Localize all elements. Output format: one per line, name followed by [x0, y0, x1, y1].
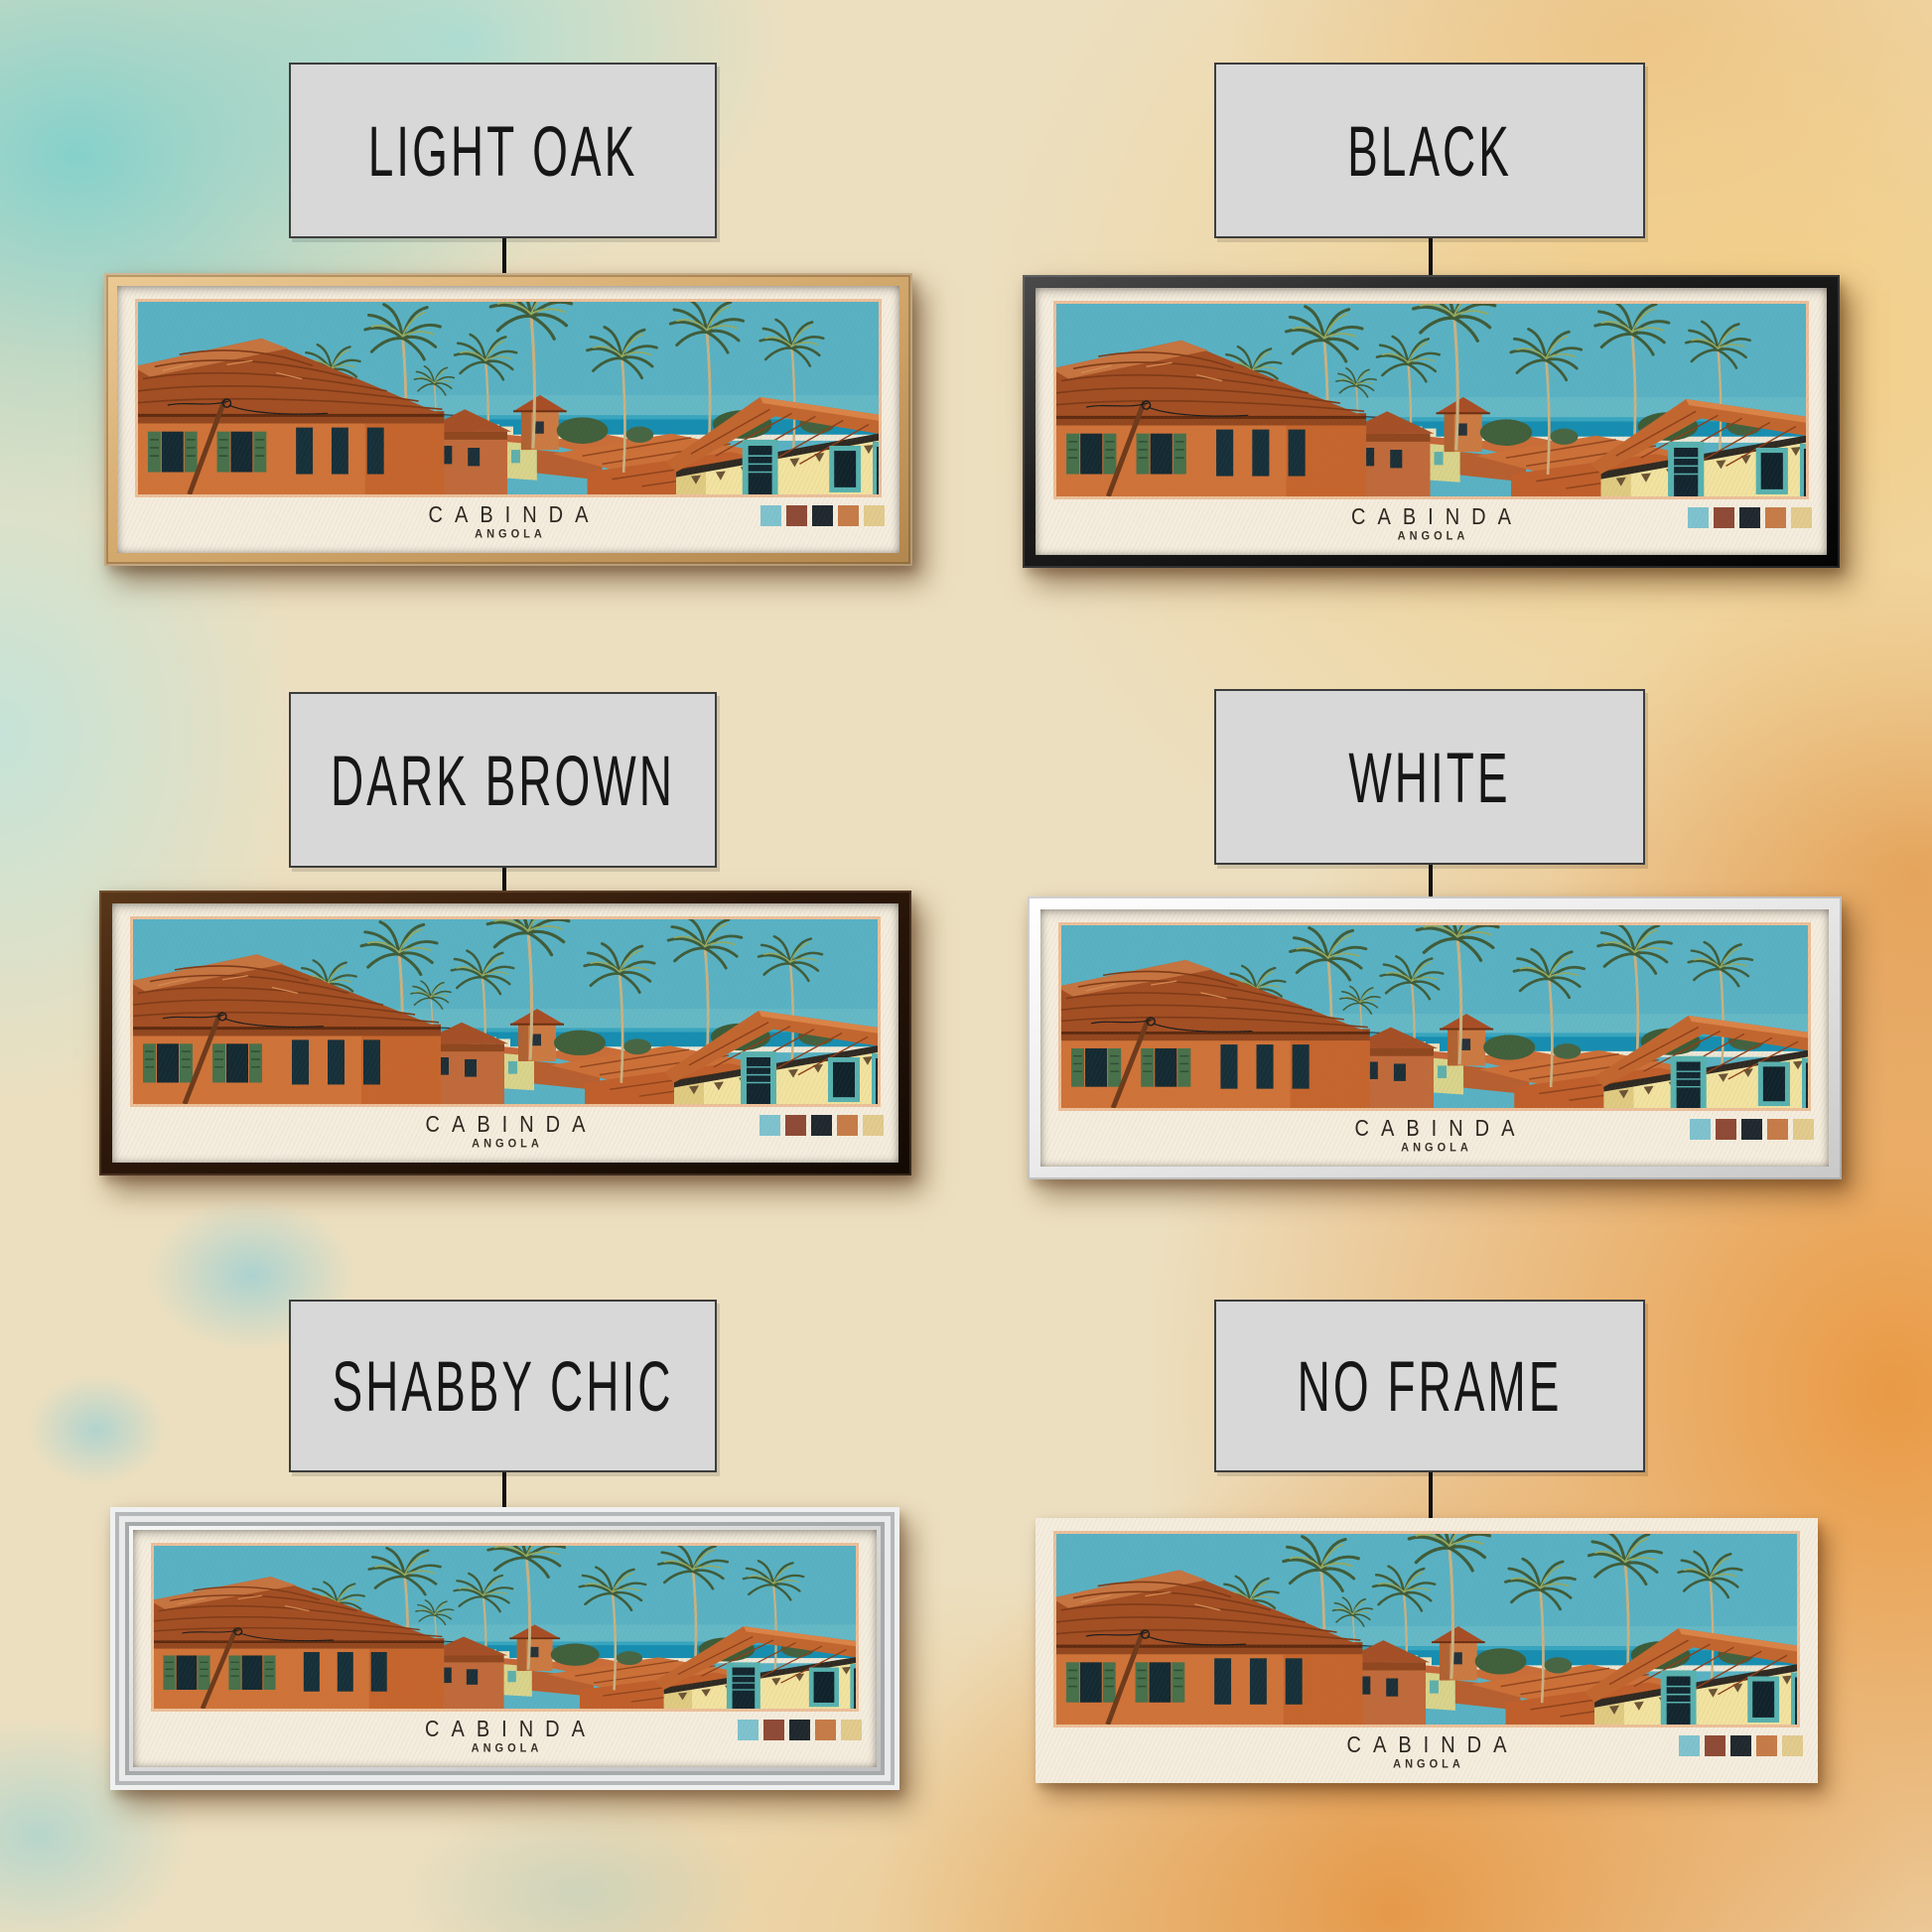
connector-line	[1429, 865, 1433, 898]
palette-swatch-4	[815, 1720, 836, 1740]
variant-label: NO FRAME	[1298, 1344, 1563, 1428]
print-subtitle: ANGOLA	[1035, 529, 1827, 542]
color-palette	[760, 505, 885, 526]
palette-swatch-1	[738, 1720, 759, 1740]
print-caption: CABINDA ANGOLA	[133, 1712, 877, 1767]
palette-swatch-2	[786, 505, 807, 526]
picture-frame-shabby-chic: CABINDA ANGOLA	[110, 1507, 899, 1790]
canvas-print: CABINDA ANGOLA	[133, 1530, 877, 1767]
variant-label: BLACK	[1347, 109, 1512, 193]
palette-swatch-4	[1767, 1119, 1788, 1140]
palette-swatch-3	[1739, 507, 1760, 528]
color-palette	[1688, 507, 1812, 528]
color-palette	[759, 1115, 884, 1136]
connector-line	[1429, 1472, 1433, 1520]
connector-line	[1429, 238, 1433, 277]
variant-label: WHITE	[1348, 736, 1510, 819]
palette-swatch-1	[1688, 507, 1709, 528]
palette-swatch-5	[864, 505, 885, 526]
palette-swatch-3	[1730, 1735, 1751, 1756]
print-subtitle: ANGOLA	[112, 1137, 898, 1150]
artwork	[1058, 922, 1811, 1111]
print-subtitle: ANGOLA	[1035, 1757, 1818, 1770]
picture-frame-black: CABINDA ANGOLA	[1023, 275, 1840, 568]
cabinda-artwork-svg	[1056, 1534, 1797, 1725]
artwork	[135, 299, 882, 497]
connector-line	[502, 1472, 506, 1509]
palette-swatch-2	[1714, 507, 1734, 528]
variant-label: DARK BROWN	[331, 739, 675, 822]
color-palette	[1679, 1735, 1803, 1756]
palette-swatch-5	[1782, 1735, 1803, 1756]
cabinda-artwork-svg	[154, 1546, 856, 1709]
variant-label-box: LIGHT OAK	[289, 63, 717, 238]
print-caption: CABINDA ANGOLA	[117, 497, 899, 553]
palette-swatch-2	[763, 1720, 784, 1740]
wall-background: { "print": { "title": "CABINDA", "subtit…	[0, 0, 1932, 1932]
variant-label-box: NO FRAME	[1214, 1300, 1645, 1472]
cabinda-artwork-svg	[1061, 925, 1808, 1108]
color-palette	[738, 1720, 862, 1740]
print-caption: CABINDA ANGOLA	[112, 1107, 898, 1163]
palette-swatch-1	[1679, 1735, 1700, 1756]
picture-frame-white: CABINDA ANGOLA	[1028, 897, 1842, 1179]
cabinda-artwork-svg	[138, 302, 879, 494]
print-caption: CABINDA ANGOLA	[1040, 1111, 1829, 1167]
palette-swatch-4	[1756, 1735, 1777, 1756]
variant-label-box: DARK BROWN	[289, 692, 717, 868]
print-caption: CABINDA ANGOLA	[1035, 1727, 1818, 1783]
print-caption: CABINDA ANGOLA	[1035, 499, 1827, 555]
palette-swatch-3	[811, 1115, 832, 1136]
connector-line	[502, 238, 506, 275]
artwork	[1053, 1531, 1800, 1727]
palette-swatch-5	[863, 1115, 884, 1136]
canvas-print: CABINDA ANGOLA	[1035, 1518, 1818, 1783]
connector-line	[502, 868, 506, 893]
canvas-print: CABINDA ANGOLA	[1040, 909, 1829, 1167]
palette-swatch-2	[1705, 1735, 1725, 1756]
picture-frame-dark-brown: CABINDA ANGOLA	[99, 891, 911, 1175]
palette-swatch-2	[1716, 1119, 1736, 1140]
print-subtitle: ANGOLA	[117, 527, 899, 540]
palette-swatch-1	[1690, 1119, 1711, 1140]
palette-swatch-3	[812, 505, 833, 526]
palette-swatch-5	[841, 1720, 862, 1740]
print-subtitle: ANGOLA	[133, 1741, 877, 1754]
artwork	[130, 916, 881, 1107]
variant-label: SHABBY CHIC	[332, 1344, 673, 1428]
palette-swatch-1	[759, 1115, 780, 1136]
picture-frame-light-oak: CABINDA ANGOLA	[104, 273, 912, 566]
palette-swatch-4	[837, 1115, 858, 1136]
palette-swatch-4	[838, 505, 859, 526]
variant-label-box: WHITE	[1214, 689, 1645, 865]
color-palette	[1690, 1119, 1814, 1140]
palette-swatch-5	[1791, 507, 1812, 528]
canvas-print: CABINDA ANGOLA	[112, 903, 898, 1163]
canvas-print: CABINDA ANGOLA	[1035, 288, 1827, 555]
print-subtitle: ANGOLA	[1040, 1141, 1829, 1154]
cabinda-artwork-svg	[133, 919, 878, 1104]
artwork	[1053, 301, 1809, 499]
palette-swatch-4	[1765, 507, 1786, 528]
variant-label: LIGHT OAK	[368, 109, 638, 193]
cabinda-artwork-svg	[1056, 304, 1806, 496]
variant-label-box: BLACK	[1214, 63, 1645, 238]
palette-swatch-1	[760, 505, 781, 526]
artwork	[151, 1543, 859, 1712]
variant-label-box: SHABBY CHIC	[289, 1300, 717, 1472]
palette-swatch-3	[1741, 1119, 1762, 1140]
canvas-print: CABINDA ANGOLA	[117, 286, 899, 553]
unframed-canvas: CABINDA ANGOLA	[1035, 1518, 1818, 1783]
palette-swatch-2	[785, 1115, 806, 1136]
palette-swatch-3	[789, 1720, 810, 1740]
palette-swatch-5	[1793, 1119, 1814, 1140]
